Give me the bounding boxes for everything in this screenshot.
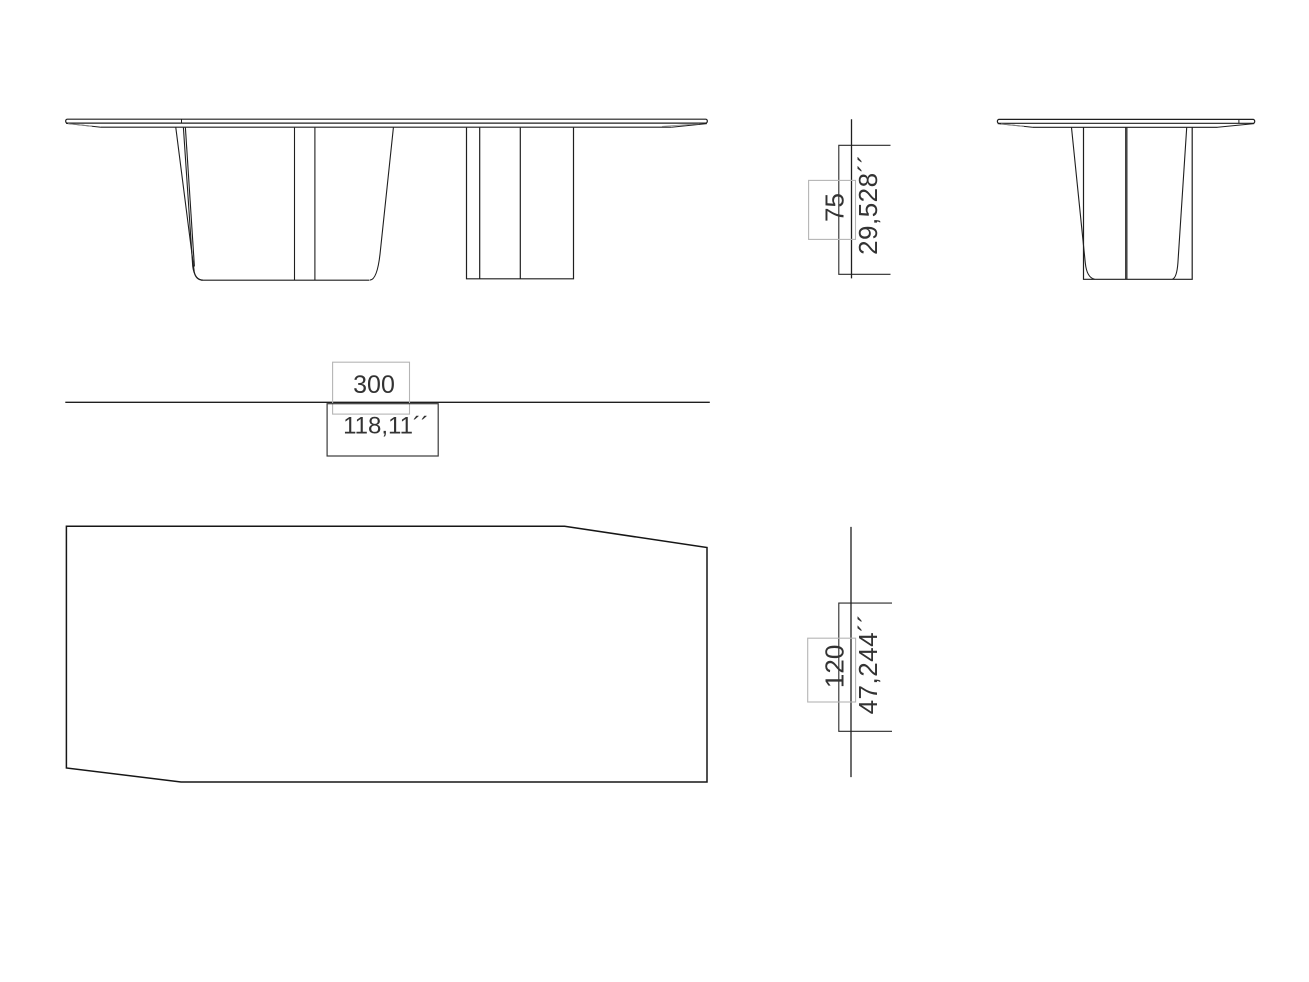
svg-text:75: 75 (819, 193, 849, 222)
svg-text:29,528´´: 29,528´´ (853, 154, 883, 255)
svg-text:300: 300 (353, 371, 395, 399)
svg-text:118,11´´: 118,11´´ (343, 412, 429, 439)
svg-text:120: 120 (819, 645, 849, 688)
svg-text:47,244´´: 47,244´´ (853, 614, 883, 715)
